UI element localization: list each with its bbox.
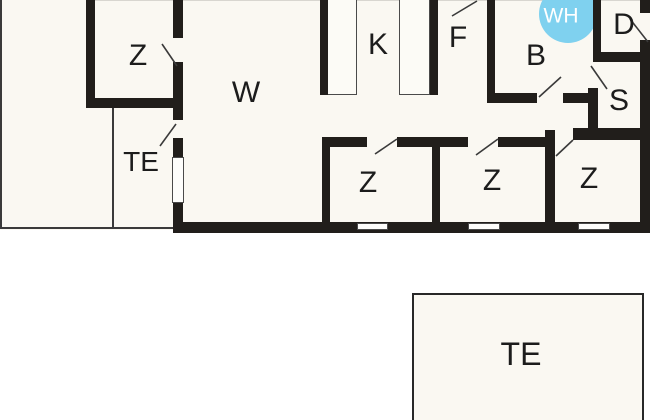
room-label-d: D [613, 10, 635, 40]
door-swing-te-annex [160, 124, 176, 146]
door-swing-z-topleft [162, 44, 177, 66]
floor-plan: Z TE W K F B WH D S Z Z Z TE [0, 0, 650, 420]
door-swing-z2 [476, 139, 498, 155]
door-swing-f [452, 1, 477, 16]
room-label-wh: WH [544, 6, 579, 27]
door-swing-z1 [375, 139, 397, 154]
room-label-z2: Z [483, 166, 501, 196]
room-label-k: K [368, 30, 388, 60]
room-label-s: S [609, 86, 629, 116]
room-label-z-top-left: Z [129, 41, 147, 71]
room-label-te-detached: TE [501, 338, 542, 370]
room-label-w: W [232, 78, 260, 108]
room-label-te-annex: TE [123, 148, 159, 176]
door-swing-s [591, 66, 607, 89]
door-swing-z3 [556, 140, 573, 156]
room-label-z1: Z [359, 168, 377, 198]
room-label-f: F [449, 23, 467, 53]
room-label-z3: Z [580, 164, 598, 194]
room-label-b: B [526, 41, 546, 71]
door-swing-b [539, 77, 561, 97]
